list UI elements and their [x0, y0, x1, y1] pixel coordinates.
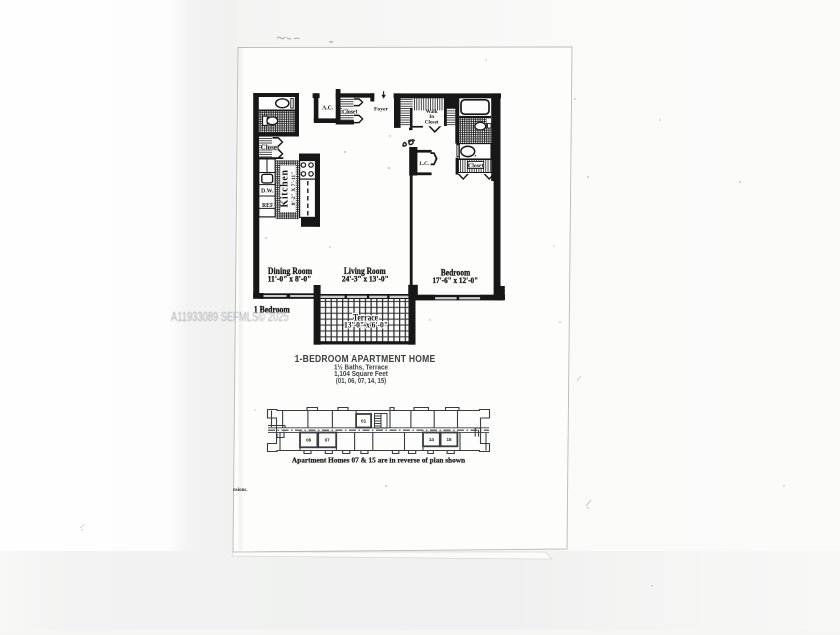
svg-text:14: 14: [429, 437, 435, 442]
svg-text:A11933089 SEFMLS© 2025: A11933089 SEFMLS© 2025: [171, 311, 289, 325]
svg-text:nsions.: nsions.: [233, 488, 248, 493]
svg-text:Foyer: Foyer: [374, 107, 388, 113]
svg-text:8'-2" X 7'-11": 8'-2" X 7'-11": [291, 172, 297, 206]
svg-text:11'-0" x 8'-0": 11'-0" x 8'-0": [268, 274, 312, 283]
svg-text:Closet: Closet: [342, 109, 358, 115]
svg-text:Kitchen: Kitchen: [280, 169, 291, 207]
svg-text:(01, 06, 07, 14, 15): (01, 06, 07, 14, 15): [336, 378, 386, 386]
svg-text:L.C.: L.C.: [419, 161, 430, 167]
svg-text:17'-6" x 12'-0": 17'-6" x 12'-0": [432, 276, 478, 286]
svg-text:06: 06: [306, 438, 312, 443]
svg-text:A.C.: A.C.: [322, 106, 334, 112]
svg-text:01: 01: [361, 419, 367, 424]
svg-text:15: 15: [446, 437, 452, 442]
svg-text:REF: REF: [262, 203, 274, 209]
svg-text:13'-0" x 6'-0": 13'-0" x 6'-0": [344, 320, 388, 329]
svg-text:Apartment Homes 07 & 15 are in: Apartment Homes 07 & 15 are in reverse o…: [292, 456, 465, 465]
svg-text:24'-3" x 13'-0": 24'-3" x 13'-0": [342, 274, 389, 284]
svg-text:D.W.: D.W.: [261, 189, 274, 195]
svg-text:Closet: Closet: [261, 143, 280, 151]
svg-text:Closet: Closet: [468, 163, 484, 169]
svg-text:07: 07: [325, 438, 331, 443]
svg-text:Closet: Closet: [425, 120, 439, 126]
